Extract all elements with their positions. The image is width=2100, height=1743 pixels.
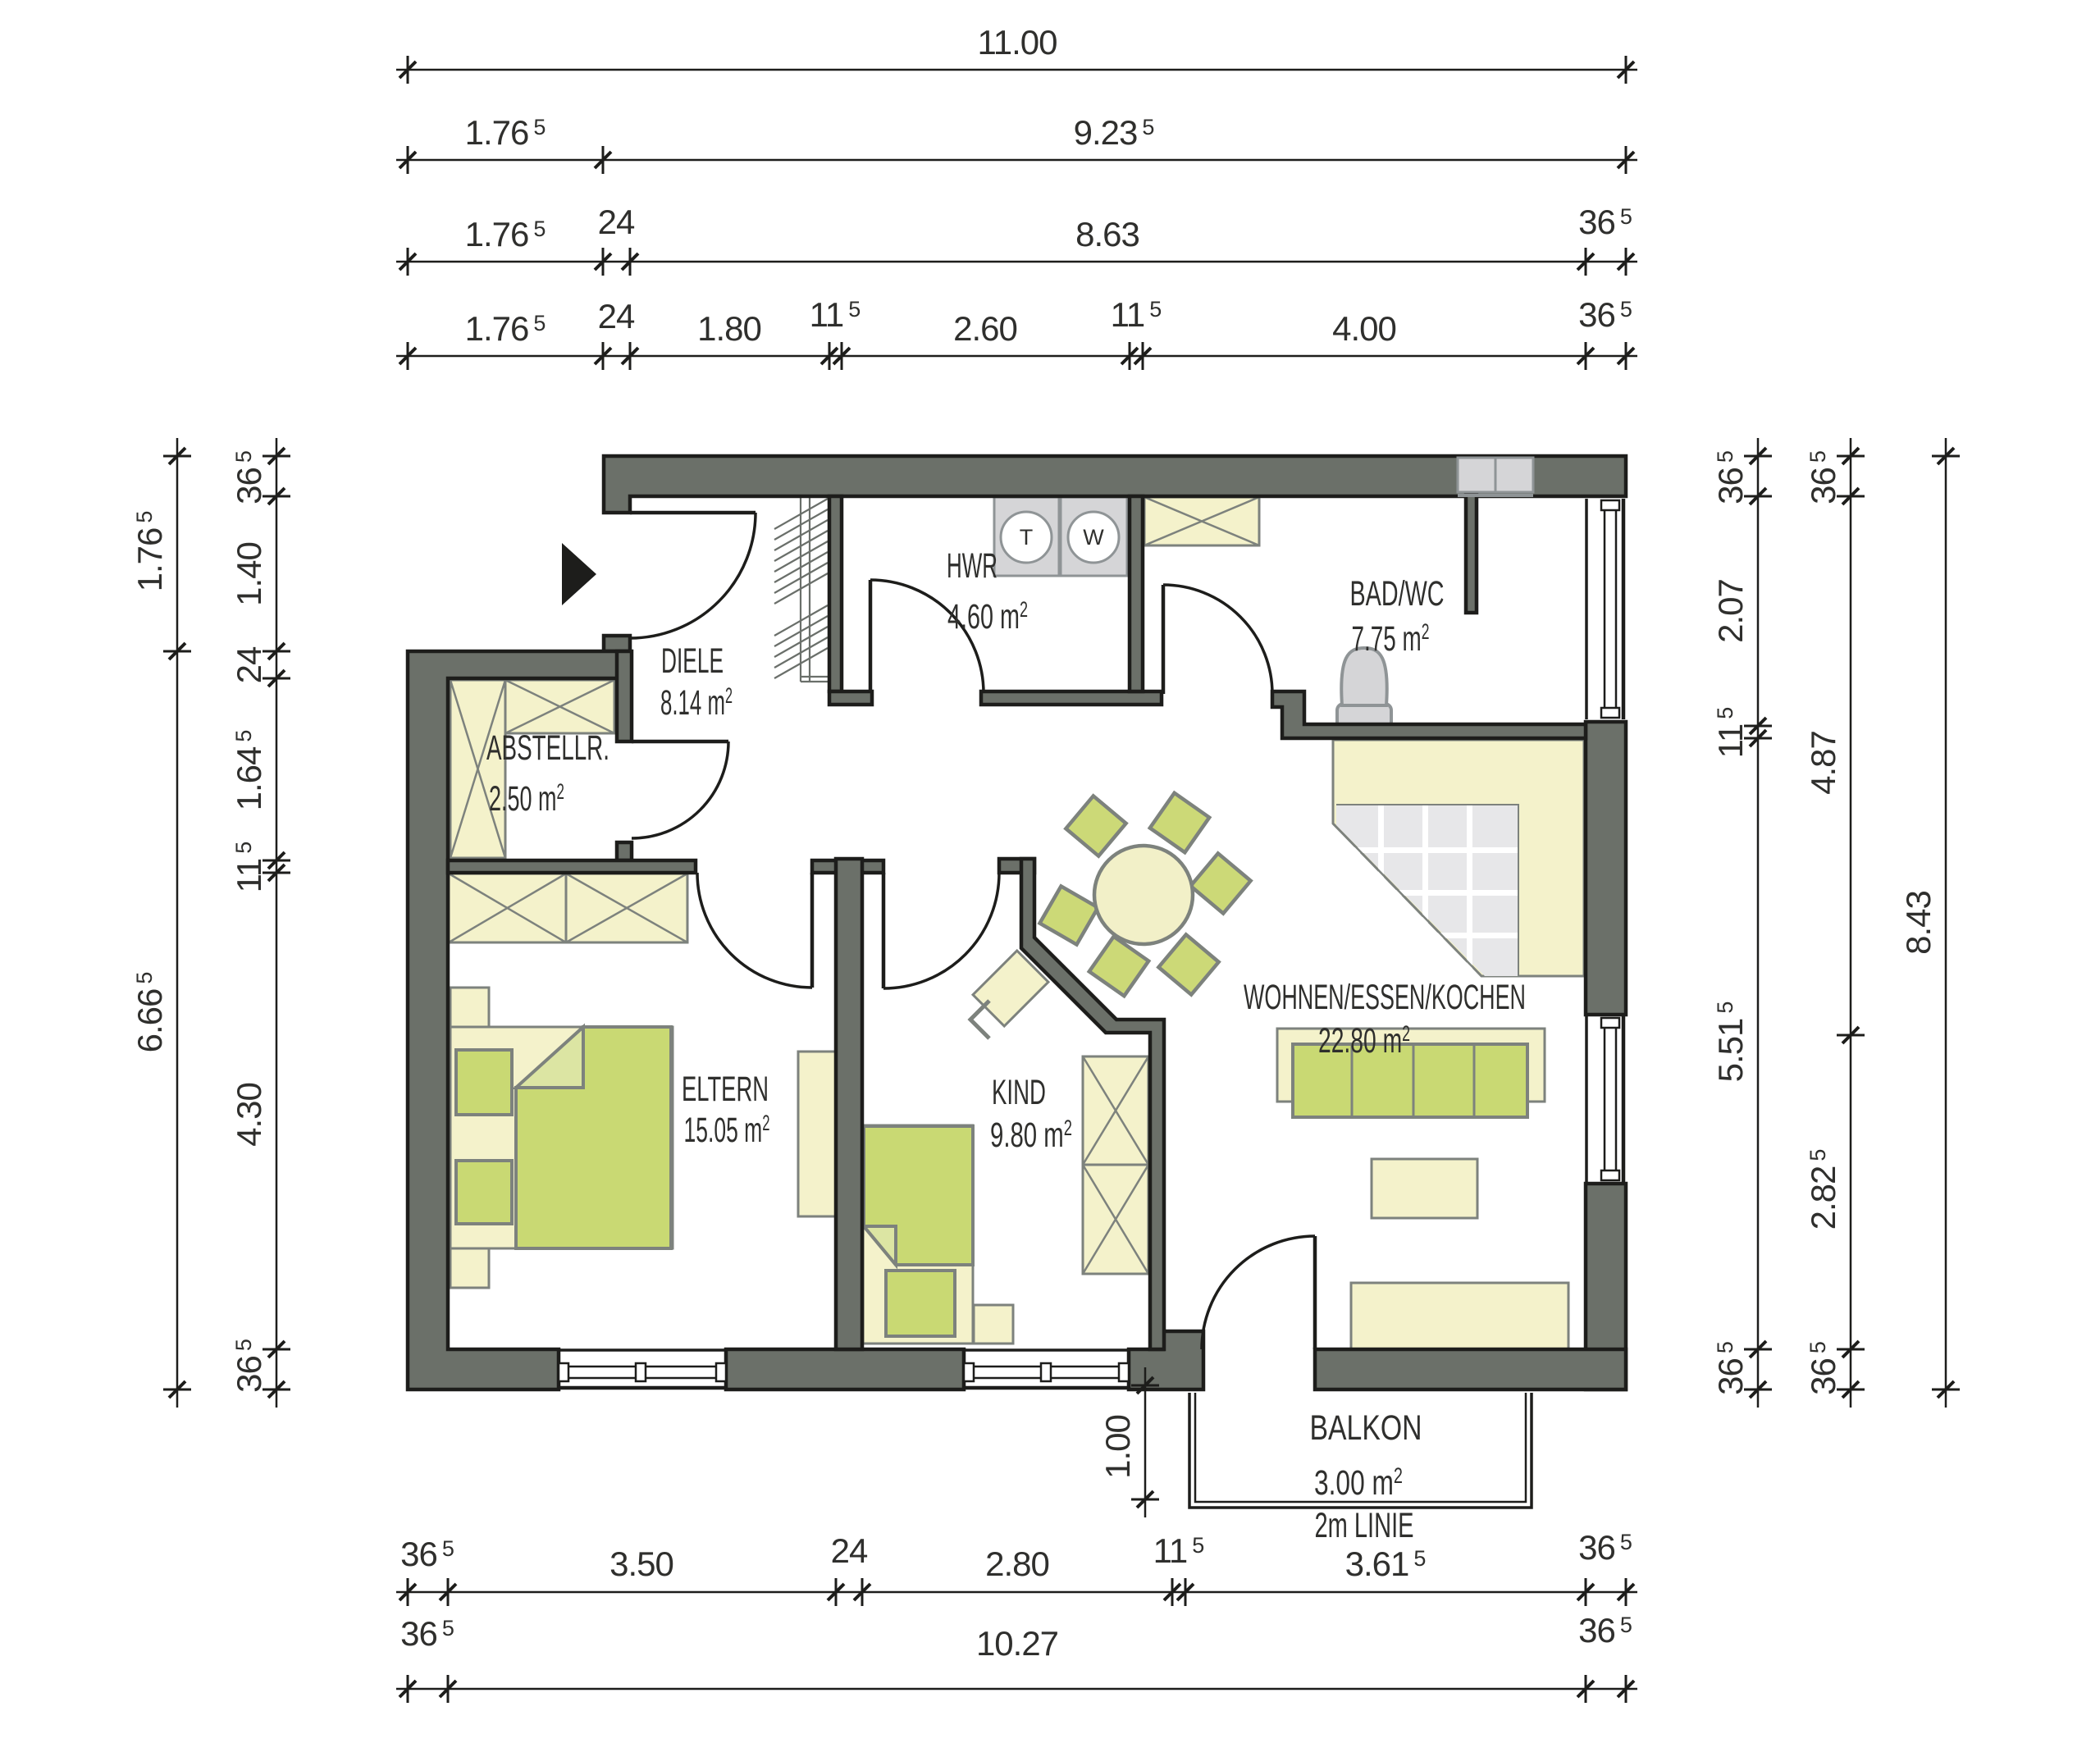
svg-text:2.07: 2.07 [1711, 579, 1750, 643]
svg-text:W: W [1083, 525, 1104, 550]
svg-text:ABSTELLR.: ABSTELLR. [486, 728, 609, 768]
svg-text:4.87: 4.87 [1804, 731, 1842, 795]
svg-text:BALKON: BALKON [1310, 1408, 1422, 1448]
svg-text:1.40: 1.40 [230, 542, 268, 606]
svg-text:8.63: 8.63 [1075, 215, 1139, 253]
svg-text:T: T [1020, 525, 1034, 550]
svg-text:8.14 m2: 8.14 m2 [660, 683, 733, 723]
svg-text:1.80: 1.80 [697, 309, 761, 348]
svg-text:HWR: HWR [947, 546, 997, 586]
svg-text:24: 24 [230, 646, 268, 683]
svg-text:22.80 m2: 22.80 m2 [1318, 1021, 1410, 1061]
svg-text:BAD/WC: BAD/WC [1350, 574, 1445, 614]
svg-text:1.00: 1.00 [1098, 1415, 1137, 1479]
svg-text:3.00 m2: 3.00 m2 [1314, 1463, 1403, 1503]
svg-text:2.80: 2.80 [985, 1545, 1049, 1583]
svg-text:DIELE: DIELE [661, 641, 724, 681]
svg-text:4.60 m2: 4.60 m2 [947, 597, 1028, 637]
svg-text:4.30: 4.30 [230, 1083, 268, 1147]
svg-text:2.50 m2: 2.50 m2 [489, 779, 564, 819]
svg-text:4.00: 4.00 [1332, 309, 1396, 348]
svg-text:KIND: KIND [992, 1073, 1046, 1112]
svg-text:24: 24 [831, 1531, 868, 1570]
svg-text:11.00: 11.00 [978, 23, 1057, 62]
svg-text:2.60: 2.60 [953, 309, 1017, 348]
svg-text:24: 24 [598, 297, 635, 335]
svg-text:WOHNEN/ESSEN/KOCHEN: WOHNEN/ESSEN/KOCHEN [1244, 978, 1526, 1017]
svg-text:24: 24 [598, 203, 635, 241]
svg-text:ELTERN: ELTERN [682, 1070, 769, 1109]
svg-text:3.50: 3.50 [609, 1545, 673, 1583]
svg-text:15.05 m2: 15.05 m2 [684, 1111, 770, 1150]
svg-text:8.43: 8.43 [1899, 891, 1938, 955]
svg-text:10.27: 10.27 [976, 1624, 1058, 1663]
svg-text:9.80 m2: 9.80 m2 [990, 1116, 1072, 1155]
svg-text:2m LINIE: 2m LINIE [1315, 1506, 1414, 1545]
svg-text:7.75 m2: 7.75 m2 [1352, 619, 1430, 659]
